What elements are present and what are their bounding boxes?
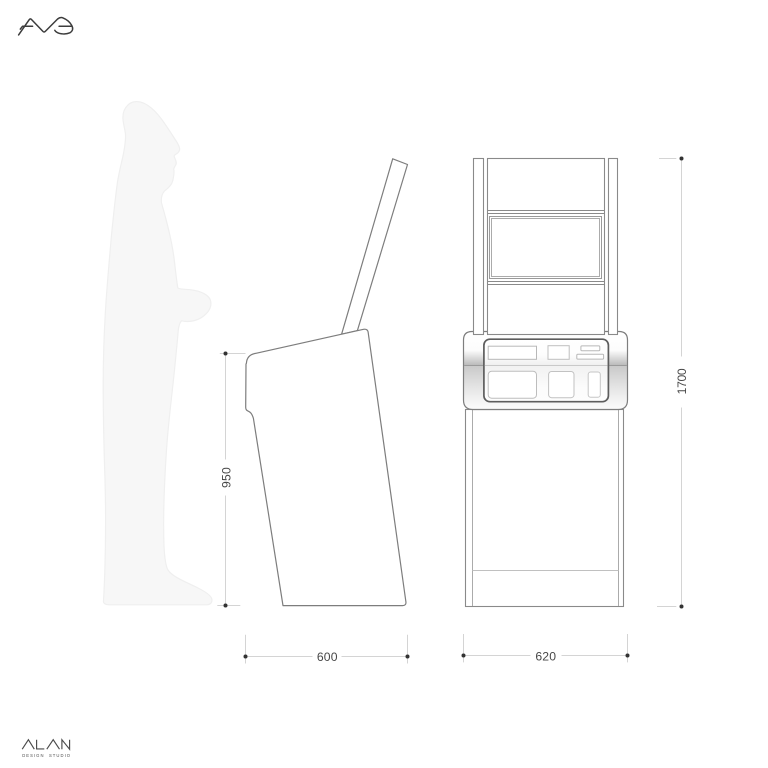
svg-text:620: 620 [535,649,556,663]
svg-text:950: 950 [220,467,234,488]
svg-text:600: 600 [317,650,338,664]
svg-text:1700: 1700 [675,368,689,394]
svg-text:DESIGN STUDIO: DESIGN STUDIO [22,753,71,758]
